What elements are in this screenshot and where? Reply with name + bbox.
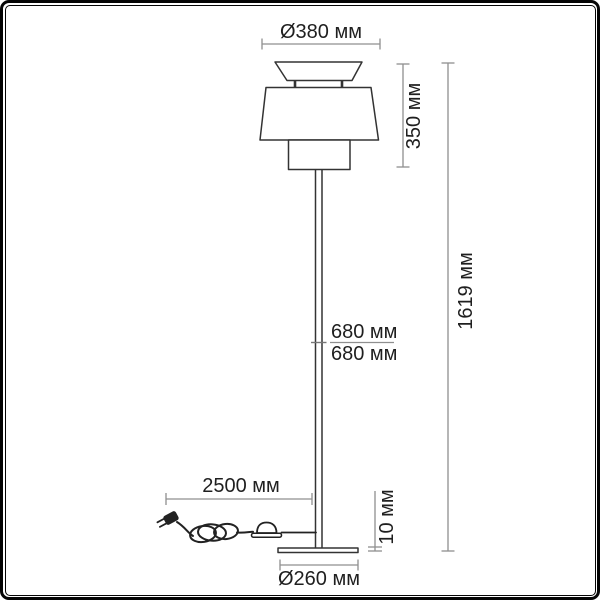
power-cord-assembly: [156, 510, 316, 543]
dim-total-height-label: 1619 мм: [455, 241, 477, 341]
cord-coil: [189, 523, 239, 544]
lamp-pole: [316, 169, 323, 549]
lamp-dimension-diagram: Ø380 мм 350 мм 1619 мм 680 мм 680 мм 250…: [0, 0, 600, 600]
dim-cord-length-label: 2500 мм: [166, 475, 316, 497]
lamp-main-shade: [260, 88, 379, 141]
dim-shade-height-label: 350 мм: [403, 66, 425, 166]
dim-pole-upper-label: 680 мм: [331, 321, 451, 343]
dim-top-diameter-label: Ø380 мм: [246, 21, 396, 43]
dim-pole-lower-label: 680 мм: [331, 343, 451, 365]
foot-switch: [252, 523, 282, 538]
lamp-base: [278, 548, 358, 553]
technical-drawing-canvas: [0, 0, 600, 600]
power-cord-mid: [237, 532, 253, 533]
dim-line-total-height: [442, 63, 455, 551]
power-plug-icon: [156, 510, 179, 529]
dim-base-thickness-label: 10 мм: [376, 467, 398, 567]
lamp-lower-tier: [289, 140, 351, 170]
lamp-top-bowl: [275, 62, 362, 81]
dim-base-diameter-label: Ø260 мм: [244, 568, 394, 590]
